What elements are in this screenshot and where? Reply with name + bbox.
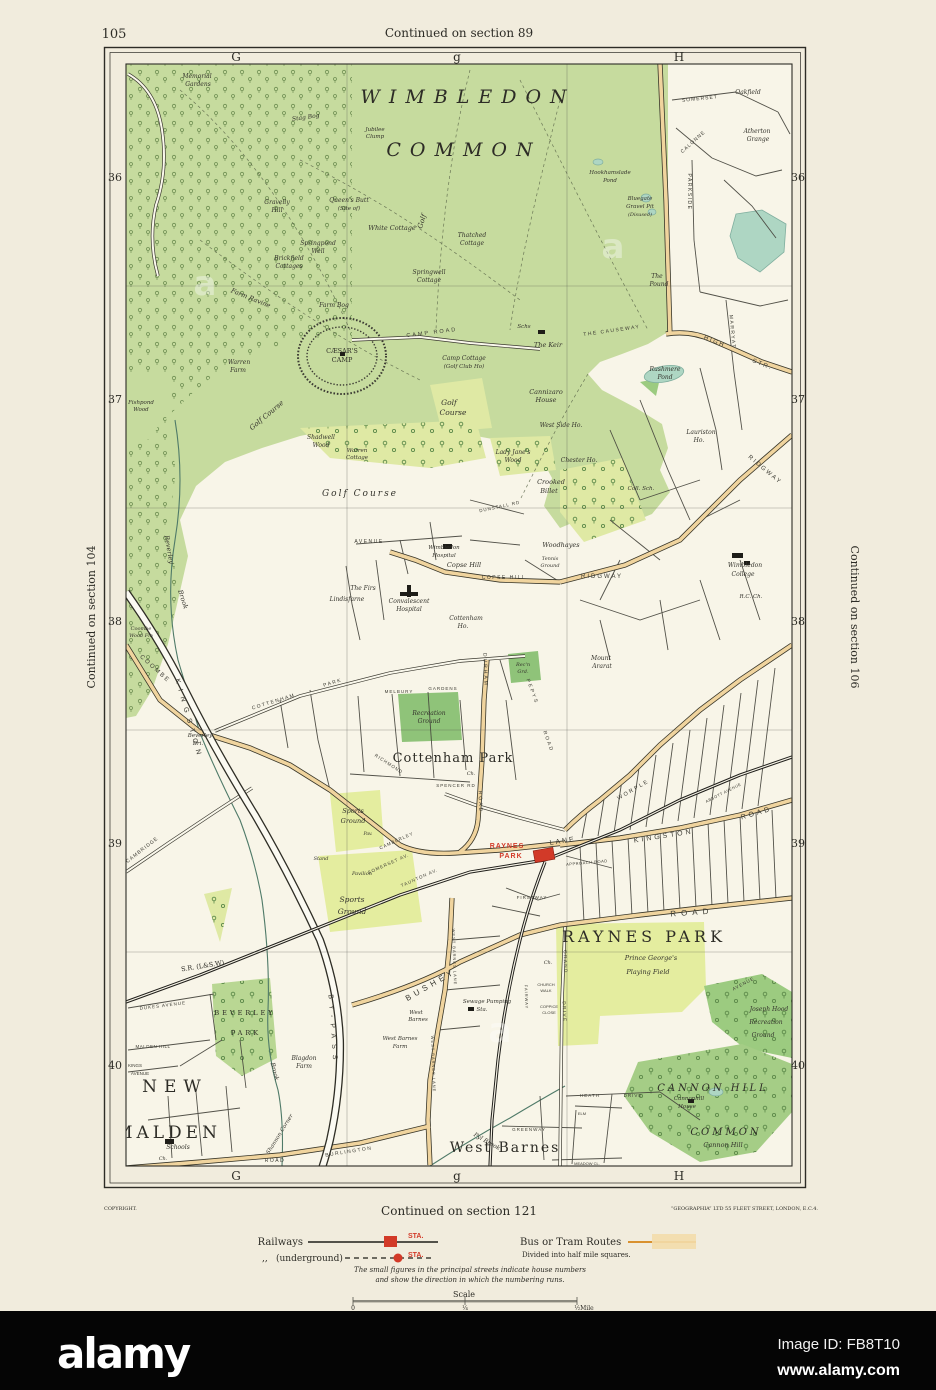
label-ridgway: RIDGWAY <box>581 574 623 580</box>
grid-col-G-top: G <box>231 50 241 64</box>
label-warren: Warren <box>347 448 368 454</box>
label-gravel-pit: Gravel Pit <box>626 204 655 210</box>
label-gardens: GARDENS <box>428 686 457 691</box>
label-church: CHURCH <box>537 982 554 987</box>
label-walk: WALK <box>540 988 552 993</box>
label-grand: GRAND <box>563 950 569 974</box>
label-pav: Pav. <box>363 831 374 837</box>
top-note: Continued on section 89 <box>385 26 533 40</box>
label-lauriston: Lauriston <box>685 429 715 436</box>
label-spencer-rd: SPENCER RD <box>436 783 476 788</box>
label-farm-bog: Farm Bog <box>318 302 349 309</box>
grid-row-39-right: 39 <box>791 837 805 850</box>
publisher: “GEOGRAPHIA” LTD 55 FLEET STREET, LONDON… <box>671 1205 819 1212</box>
grid-row-38-left: 38 <box>108 615 122 628</box>
label-melbury: MELBURY <box>385 689 414 694</box>
legend-divided: Divided into half mile squares. <box>522 1251 631 1259</box>
grid-row-40-left: 40 <box>108 1059 122 1072</box>
label-mount: Mount <box>590 655 611 662</box>
label-drive: DRIVE <box>562 1001 568 1022</box>
label-wimbledon: WIMBLEDON <box>360 86 575 108</box>
label-ch: Ch. <box>159 1156 168 1162</box>
label-drive: DRIVE <box>624 1093 643 1098</box>
label-gardens: Gardens <box>185 81 211 88</box>
label-coppice: COPPICE <box>540 1004 558 1009</box>
label-ground: Ground <box>418 718 441 725</box>
label-lindisfarne: Lindisfarne <box>329 596 365 603</box>
label-cottage: Cottage <box>346 455 369 461</box>
label-cottages: Cottages <box>275 263 302 270</box>
label-cannon-hill: Cannon Hill <box>703 1141 742 1149</box>
label-copse-hill: COPSE HILL <box>482 575 526 581</box>
legend-railways: Railways <box>258 1237 303 1248</box>
label-beverley: BEVERLEY <box>214 1009 275 1017</box>
map-svg: WIMBLEDONCOMMONMemorialGardensStag BogJu… <box>0 0 936 1390</box>
label-schs: Schs <box>517 324 530 330</box>
label-cottage: Cottage <box>417 277 441 284</box>
label-elm: ELM <box>578 1111 586 1116</box>
label-cottage: Cottage <box>460 240 484 247</box>
label-ararat: Ararat <box>591 663 612 670</box>
label-hill: Hill <box>271 207 283 214</box>
label-farm: Farm <box>295 1063 312 1070</box>
label-malden: MALDEN <box>115 1123 221 1143</box>
label-ground: Ground <box>540 563 559 569</box>
label-jubilee: Jubilee <box>364 127 385 133</box>
label-gravelly: Gravelly <box>264 199 290 206</box>
legend-sta-underground: STA. <box>408 1252 423 1259</box>
label-memorial: Memorial <box>181 73 211 80</box>
label-atherton: Atherton <box>743 128 771 135</box>
label-hookhamslade: Hookhamslade <box>588 170 631 176</box>
label-playing-field: Playing Field <box>625 968 669 976</box>
label-west: West <box>409 1010 423 1016</box>
grid-col-H-top: H <box>674 50 684 64</box>
label-disused: (Disused) <box>628 211 652 218</box>
label-golf: Golf <box>441 398 458 407</box>
label-springpond: Springpond <box>300 240 336 247</box>
label-west-barnes: West Barnes <box>450 1140 561 1156</box>
label-college: College <box>732 571 755 578</box>
grid-col-H-bottom: H <box>674 1169 684 1183</box>
label-white-cottage: White Cottage <box>368 224 416 232</box>
scanned-map-page: WIMBLEDONCOMMONMemorialGardensStag BogJu… <box>0 0 936 1390</box>
label-meadow-cl: MEADOW CL. <box>574 1161 600 1166</box>
label-farm: Farm <box>392 1044 408 1050</box>
label-malden-hill: MALDEN HILL <box>135 1044 170 1049</box>
legend-scale: Scale <box>453 1290 475 1299</box>
label-ho: Ho. <box>693 437 705 444</box>
watermark-ghost: a <box>602 227 625 267</box>
label-chester-ho: Chester Ho. <box>561 457 598 464</box>
label-pond: Pond <box>656 374 672 381</box>
label-springwell: Springwell <box>413 269 446 276</box>
label-cannon-hill: CANNON HILL <box>657 1083 768 1094</box>
label-r-c-ch: R.C. Ch. <box>739 594 763 600</box>
label-west-barnes: West Barnes <box>383 1036 418 1042</box>
label-barnes: Barnes <box>407 1017 428 1023</box>
grid-col-G-bottom: G <box>231 1169 241 1183</box>
label-lady-jane-s: Lady Jane's <box>495 449 531 456</box>
legend-bus-swatch <box>652 1234 696 1249</box>
label-park: PARK <box>231 1029 261 1037</box>
scale-0: 0 <box>351 1305 355 1312</box>
label-prince-george-s: Prince George's <box>624 954 678 962</box>
alamy-logo: alamy <box>57 1329 191 1378</box>
label-cannonhill: Cannonhill <box>674 1096 704 1102</box>
label-durham: DURHAM <box>481 653 488 687</box>
copyright: COPYRIGHT. <box>104 1206 137 1212</box>
label-sta: Sta. <box>476 1007 487 1013</box>
legend-ditto: ,, <box>262 1254 268 1264</box>
label-the: The <box>651 273 663 280</box>
label-grd: Grd. <box>517 669 529 675</box>
label-clump: Clump <box>366 134 385 140</box>
scale-quarter: ¼ <box>462 1305 468 1312</box>
label-warren: Warren <box>228 359 251 366</box>
left-note: Continued on section 104 <box>85 546 98 689</box>
label-fishpond: Fishpond <box>127 400 154 406</box>
label-greenway: GREENWAY <box>512 1127 546 1132</box>
label-fairway: FAIRWAY <box>524 985 530 1010</box>
label-road: ROAD <box>477 791 484 814</box>
grid-col-g-top: g <box>453 50 461 64</box>
label-common: COMMON <box>386 139 541 161</box>
label-crooked: Crooked <box>537 478 565 486</box>
label-cottenham-park: Cottenham Park <box>393 751 514 766</box>
label-schools: Schools <box>166 1144 190 1151</box>
label-hospital: Hospital <box>431 553 456 559</box>
label-recreation: Recreation <box>411 710 445 717</box>
label-common: COMMON <box>690 1127 761 1138</box>
label-ho: Ho. <box>457 623 469 630</box>
legend-sta-main: STA. <box>408 1233 423 1240</box>
map-interior: WIMBLEDONCOMMONMemorialGardensStag BogJu… <box>115 64 792 1174</box>
label-woodhayes: Woodhayes <box>542 541 580 549</box>
grid-row-39-left: 39 <box>108 837 122 850</box>
label-tennis: Tennis <box>542 556 559 562</box>
label-sports: Sports <box>342 807 364 815</box>
label-avenue: AVENUE <box>354 539 383 545</box>
legend-station-circle <box>394 1254 403 1263</box>
label-wimbledon: Wimbledon <box>428 545 460 551</box>
scale-half-mile: ½Mile <box>574 1305 594 1312</box>
label-pound: Pound <box>649 281 669 288</box>
label-brickfield: Brickfield <box>273 255 304 262</box>
label-joseph-hood: Joseph Hood <box>748 1006 789 1013</box>
label-sports: Sports <box>340 895 365 904</box>
label-hospital: Hospital <box>395 606 422 613</box>
grid-row-36-left: 36 <box>108 171 122 184</box>
right-note: Continued on section 106 <box>848 546 861 689</box>
label-coll-sch: Coll. Sch. <box>628 486 655 492</box>
label-the-keir: The Keir <box>534 341 563 349</box>
grid-col-g-bottom: g <box>453 1169 461 1183</box>
label-camp: CAMP <box>332 356 353 364</box>
label-ground: Ground <box>338 907 367 916</box>
label-coombe: Coombe <box>131 626 152 632</box>
label-new-malden: NEW <box>142 1077 208 1097</box>
label-raynes-park: RAYNES PARK <box>562 927 726 946</box>
label-queen-s-butt: Queen's Butt <box>329 197 369 204</box>
watermark-ghost: a <box>194 264 217 304</box>
label-ch: Ch. <box>467 771 476 777</box>
label-wood-fm: Wood Fm <box>129 633 153 639</box>
label-wood: Wood <box>505 457 522 464</box>
label-well: Well <box>311 248 324 255</box>
label-pond: Pond <box>602 178 617 184</box>
label-recreation: Recreation <box>748 1019 782 1026</box>
label-c-sar-s: CÆSAR'S <box>326 347 358 355</box>
label-billet: Billet <box>539 487 558 495</box>
legend-note-1: The small figures in the principal stree… <box>354 1266 586 1274</box>
label-house: House <box>535 396 557 404</box>
grid-row-37-left: 37 <box>108 393 122 406</box>
grid-row-37-right: 37 <box>791 393 805 406</box>
label-cannizaro: Cannizaro <box>529 388 563 396</box>
image-id: Image ID: FB8T10 <box>777 1336 900 1353</box>
label-golf-course: Golf Course <box>322 489 398 499</box>
legend-station-square <box>384 1236 397 1247</box>
label-park: PARK <box>499 853 522 860</box>
label-avenue: AVENUE <box>131 1071 149 1076</box>
label-shadwell: Shadwell <box>307 434 335 441</box>
label-golf-club-ho: (Golf Club Ho) <box>444 363 484 370</box>
label-heath: HEATH <box>580 1093 600 1098</box>
legend-underground: (underground) <box>276 1253 343 1264</box>
label-oakfield: Oakfield <box>735 89 761 96</box>
label-firstway: FIRSTWAY <box>517 895 548 900</box>
legend-bus-tram: Bus or Tram Routes <box>520 1237 621 1248</box>
watermark-ghost: a <box>489 1011 512 1051</box>
alamy-url[interactable]: www.alamy.com <box>776 1362 900 1379</box>
label-rec-n: Rec'n <box>515 662 530 668</box>
label-kings: KINGS <box>128 1063 142 1068</box>
label-copse-hill: Copse Hill <box>447 561 481 569</box>
label-ch: Ch. <box>544 960 553 966</box>
label-ground: Ground <box>341 817 366 825</box>
grid-row-36-right: 36 <box>791 171 805 184</box>
label-raynes-park-station: RAYNES <box>490 843 525 850</box>
sports-ground-south <box>318 850 422 932</box>
label-road: ROAD <box>265 1158 285 1164</box>
label-house: House <box>677 1104 696 1110</box>
grid-row-38-right: 38 <box>791 615 805 628</box>
legend-note-2: and show the direction in which the numb… <box>375 1276 564 1284</box>
label-bluegate: Bluegate <box>627 196 654 202</box>
label-blagdon: Blagdon <box>290 1055 316 1062</box>
label-site-of: (Site of) <box>338 205 360 212</box>
label-wood: Wood <box>133 407 149 413</box>
label-course: Course <box>440 408 468 417</box>
label-thatched: Thatched <box>458 232 487 239</box>
page-number: 105 <box>102 27 127 42</box>
label-ground: Ground <box>752 1032 775 1039</box>
label-stand: Stand <box>314 856 329 862</box>
hookhamslade-pond <box>593 159 603 165</box>
label-rushmere: Rushmere <box>649 366 681 373</box>
label-west-side-ho: West Side Ho. <box>540 422 583 429</box>
grid-row-40-right: 40 <box>791 1059 805 1072</box>
label-close: CLOSE <box>542 1010 556 1015</box>
label-the-firs: The Firs <box>350 585 375 592</box>
label-grange: Grange <box>747 136 770 143</box>
label-farm: Farm <box>229 367 246 374</box>
label-wood: Wood <box>313 442 330 449</box>
label-convalescent: Convalescent <box>389 598 430 605</box>
label-cottenham: Cottenham <box>449 615 483 622</box>
label-sewage-pumping: Sewage Pumping <box>463 999 512 1005</box>
label-camp-cottage: Camp Cottage <box>442 355 486 362</box>
label-wimbledon: Wimbledon <box>728 562 762 569</box>
label-parkside: PARKSIDE <box>686 174 692 211</box>
bottom-note: Continued on section 121 <box>381 1204 537 1218</box>
